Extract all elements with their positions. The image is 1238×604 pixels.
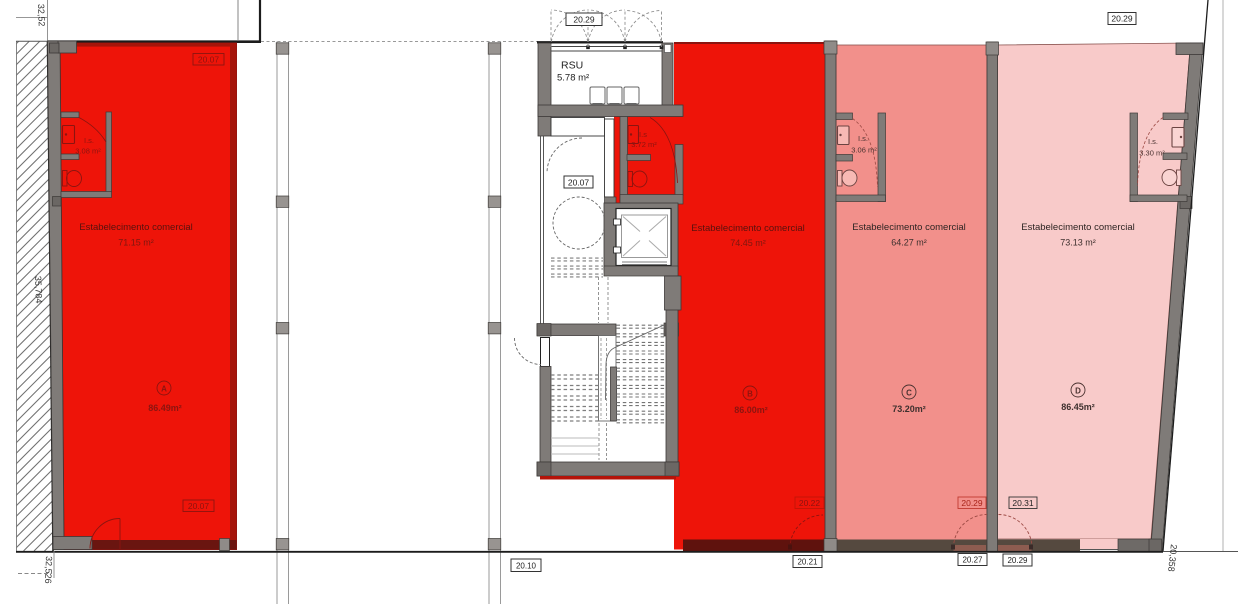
svg-text:20.07: 20.07 <box>188 501 210 511</box>
svg-text:86.00m²: 86.00m² <box>734 405 768 415</box>
svg-text:A: A <box>161 385 167 394</box>
svg-text:I.s.: I.s. <box>1148 137 1158 146</box>
svg-text:C: C <box>906 389 912 398</box>
svg-text:20.31: 20.31 <box>1012 498 1034 508</box>
svg-text:86.49m²: 86.49m² <box>148 403 182 413</box>
svg-text:I.s.: I.s. <box>858 134 868 143</box>
svg-text:I.s: I.s <box>639 130 647 139</box>
svg-text:86.45m²: 86.45m² <box>1061 402 1095 412</box>
svg-text:20.21: 20.21 <box>797 558 818 567</box>
svg-text:32,526: 32,526 <box>43 556 54 584</box>
svg-text:B: B <box>747 390 753 399</box>
svg-text:5.78 m²: 5.78 m² <box>557 73 589 84</box>
svg-text:20.07: 20.07 <box>198 55 220 65</box>
svg-text:20.29: 20.29 <box>573 15 595 25</box>
svg-text:20.29: 20.29 <box>1007 556 1028 565</box>
svg-text:20.29: 20.29 <box>961 498 983 508</box>
svg-text:3.06 m²: 3.06 m² <box>851 146 877 155</box>
svg-text:D: D <box>1075 387 1081 396</box>
svg-text:20.07: 20.07 <box>568 178 590 188</box>
svg-text:32,52: 32,52 <box>36 4 47 27</box>
svg-text:Estabelecimento comercial: Estabelecimento comercial <box>691 223 805 234</box>
svg-text:20.22: 20.22 <box>799 498 821 508</box>
svg-text:Estabelecimento comercial: Estabelecimento comercial <box>79 222 193 233</box>
svg-text:RSU: RSU <box>561 60 583 72</box>
svg-text:I.s.: I.s. <box>84 136 94 145</box>
svg-text:71.15 m²: 71.15 m² <box>118 238 154 248</box>
svg-text:3.30 m²: 3.30 m² <box>1139 149 1165 158</box>
svg-text:35,784: 35,784 <box>33 276 44 304</box>
svg-text:Estabelecimento comercial: Estabelecimento comercial <box>1021 222 1135 233</box>
svg-text:64.27 m²: 64.27 m² <box>891 238 927 248</box>
svg-text:3.08 m²: 3.08 m² <box>75 147 101 156</box>
svg-text:74.45 m²: 74.45 m² <box>730 238 766 248</box>
svg-text:20.10: 20.10 <box>516 562 537 571</box>
svg-text:20.27: 20.27 <box>962 556 983 565</box>
svg-text:20.29: 20.29 <box>1111 14 1133 24</box>
svg-text:3.72 m²: 3.72 m² <box>631 140 657 149</box>
svg-text:73.13 m²: 73.13 m² <box>1060 238 1096 248</box>
svg-text:Estabelecimento comercial: Estabelecimento comercial <box>852 222 966 233</box>
svg-text:73.20m²: 73.20m² <box>892 404 926 414</box>
